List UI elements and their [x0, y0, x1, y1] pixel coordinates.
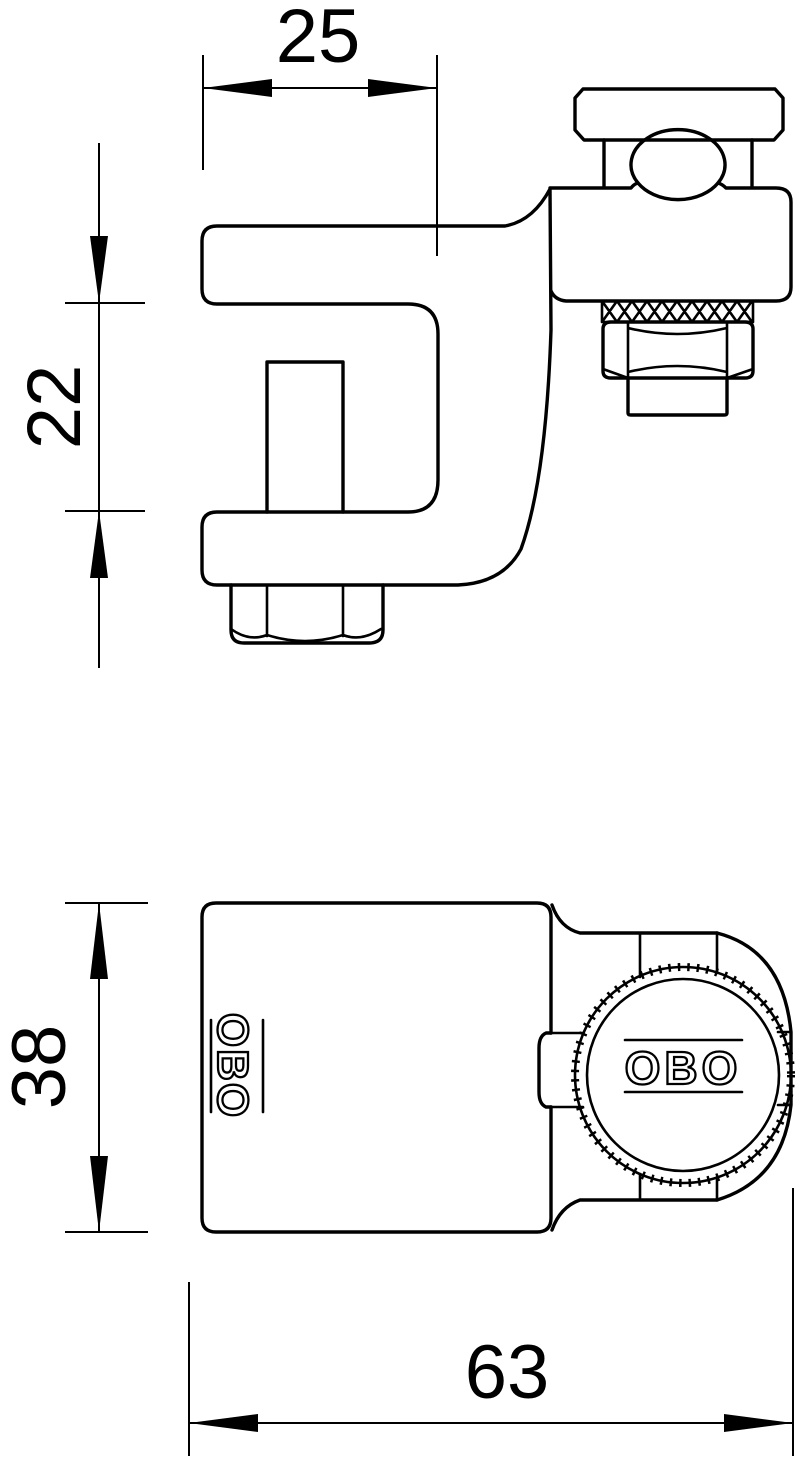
dim-38-arrow-bottom — [90, 1156, 108, 1232]
knob-logo-text: OBO — [625, 1042, 742, 1094]
body-logo-text: OBO — [208, 1013, 257, 1119]
ball-washer — [631, 130, 725, 183]
bottom-view: OBO OBO — [202, 903, 791, 1232]
dim-63-arrow-left — [189, 1414, 258, 1432]
dim-63-extension-lines — [189, 1188, 793, 1456]
dim-38-arrow-top — [90, 903, 108, 979]
dimension-body-height: 38 — [0, 903, 148, 1232]
technical-drawing-canvas: 25 22 OBO OBO — [0, 0, 796, 1459]
dim-22-value: 22 — [12, 365, 97, 450]
screw-stud-end — [628, 378, 727, 415]
dim-38-value: 38 — [0, 1025, 82, 1110]
screw-head — [575, 89, 783, 140]
hex-nut-top-facets — [603, 322, 753, 378]
pressure-pin — [267, 362, 343, 512]
dimension-jaw-depth: 25 — [203, 0, 437, 256]
hex-nut-bottom-facets — [231, 585, 381, 641]
dim-63-value: 63 — [465, 1330, 550, 1415]
side-view — [202, 89, 791, 643]
dim-25-value: 25 — [276, 0, 361, 79]
hex-nut-bottom-outline — [231, 585, 383, 643]
dim-25-arrow-left — [203, 79, 272, 97]
dim-25-arrow-right — [368, 79, 437, 97]
screw-housing-body — [550, 183, 791, 301]
dim-22-arrow-top — [90, 236, 108, 303]
serrated-washer — [602, 301, 753, 322]
beam-clamp-drawing: 25 22 OBO OBO — [0, 0, 796, 1459]
hex-nut-top-outline — [603, 322, 753, 378]
clamp-claw-outline — [202, 189, 551, 585]
dim-22-arrow-bottom — [90, 511, 108, 578]
dim-63-arrow-right — [724, 1414, 793, 1432]
dimension-jaw-opening: 22 — [12, 143, 145, 668]
screw-shaft — [604, 140, 752, 186]
dimension-total-width: 63 — [189, 1188, 793, 1456]
boss-left-flat — [539, 1033, 551, 1107]
